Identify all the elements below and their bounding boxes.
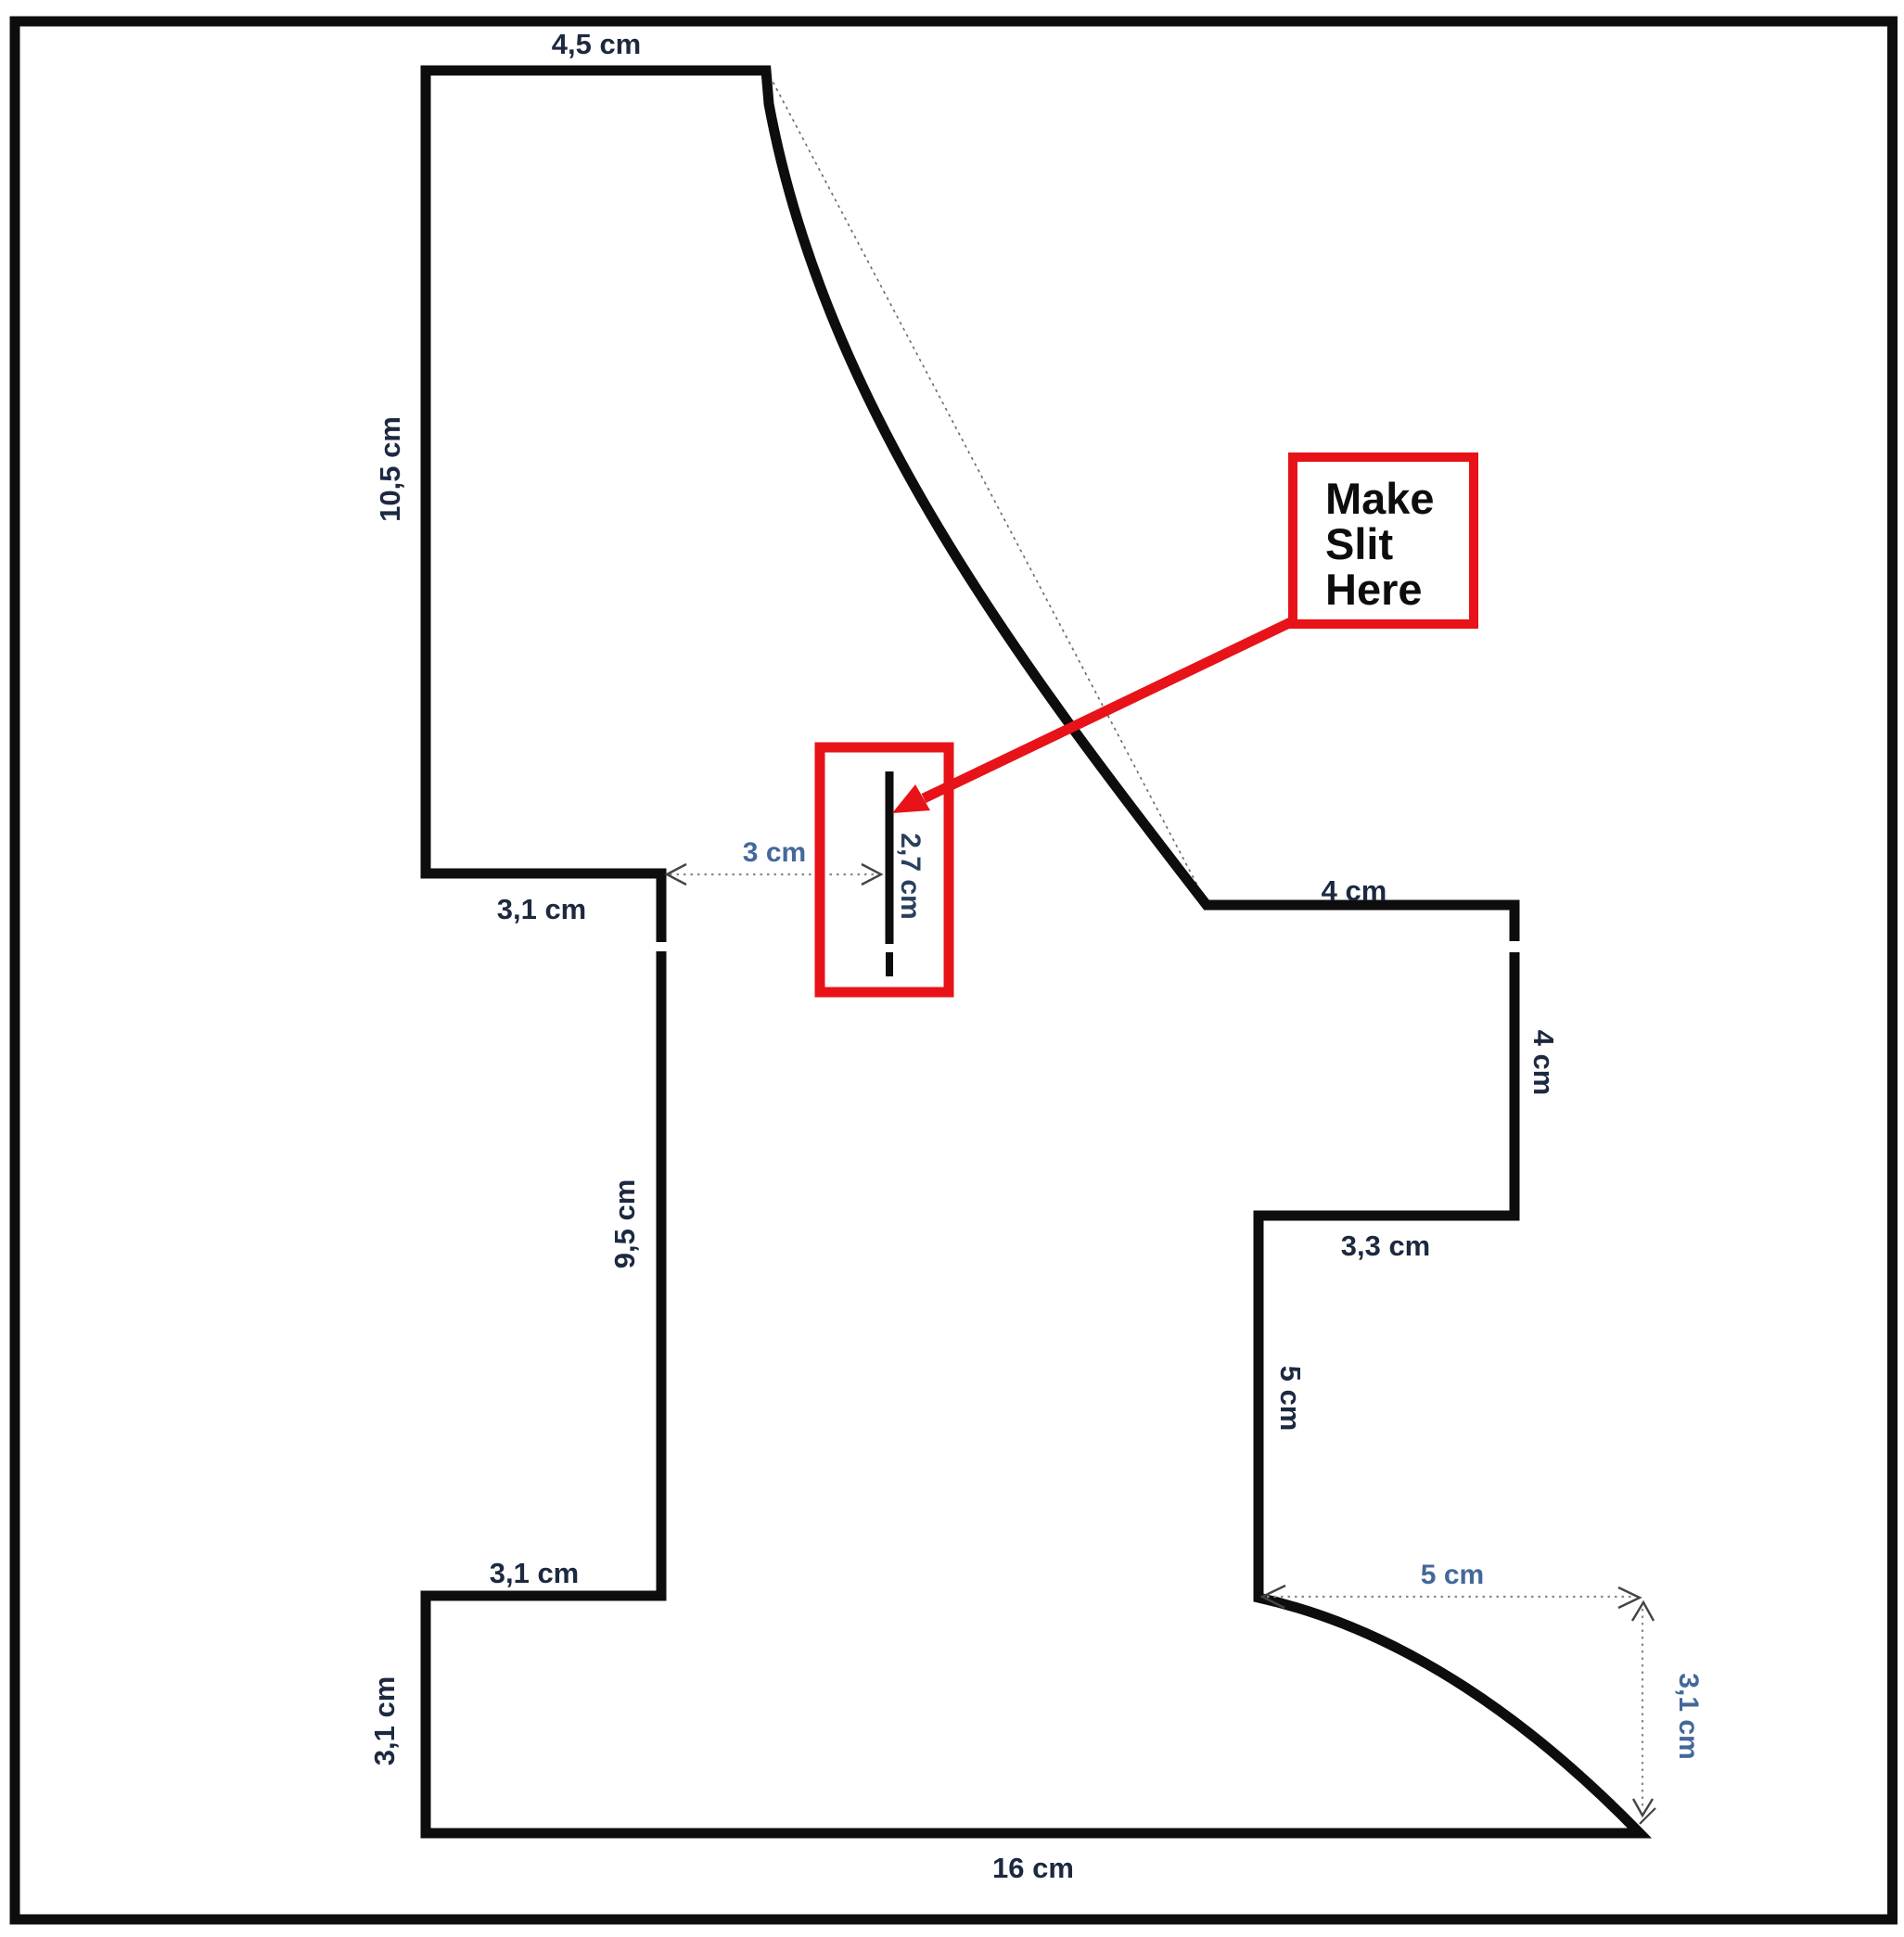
svg-text:3,1 cm: 3,1 cm <box>368 1676 401 1766</box>
svg-text:4 cm: 4 cm <box>1322 874 1387 907</box>
svg-text:Here: Here <box>1325 565 1423 614</box>
svg-text:5 cm: 5 cm <box>1274 1366 1307 1432</box>
svg-text:Make: Make <box>1325 474 1435 523</box>
svg-text:16 cm: 16 cm <box>992 1852 1074 1884</box>
svg-text:5 cm: 5 cm <box>1421 1560 1484 1590</box>
svg-text:3,1 cm: 3,1 cm <box>490 1557 580 1589</box>
svg-text:3,1 cm: 3,1 cm <box>497 893 587 925</box>
svg-text:Slit: Slit <box>1325 519 1393 568</box>
svg-text:2,7 cm: 2,7 cm <box>895 833 926 919</box>
svg-text:3 cm: 3 cm <box>743 837 806 868</box>
svg-text:4,5 cm: 4,5 cm <box>552 28 642 60</box>
svg-text:10,5 cm: 10,5 cm <box>374 416 406 522</box>
svg-text:3,3 cm: 3,3 cm <box>1341 1230 1431 1262</box>
svg-text:3,1 cm: 3,1 cm <box>1673 1673 1704 1759</box>
svg-text:4 cm: 4 cm <box>1527 1030 1560 1096</box>
svg-text:9,5 cm: 9,5 cm <box>608 1179 641 1269</box>
